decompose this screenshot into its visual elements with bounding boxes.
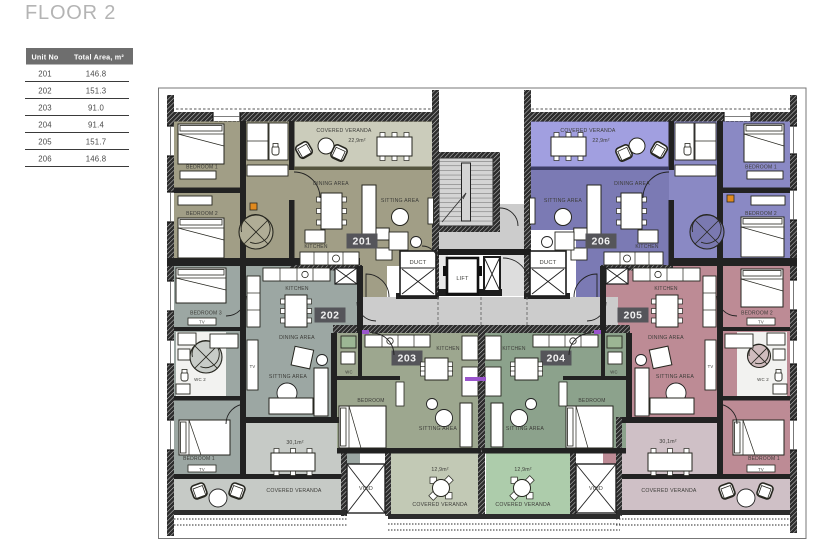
svg-text:22,9m²: 22,9m² (592, 138, 609, 144)
svg-text:205: 205 (38, 138, 52, 147)
svg-text:TV: TV (199, 467, 205, 472)
svg-text:BEDROOM 1: BEDROOM 1 (183, 456, 215, 462)
svg-text:KITCHEN: KITCHEN (635, 244, 659, 250)
svg-text:DINING AREA: DINING AREA (279, 335, 315, 341)
svg-text:201: 201 (38, 70, 52, 79)
svg-text:SITTING AREA: SITTING AREA (506, 426, 544, 432)
svg-text:91.0: 91.0 (88, 104, 104, 113)
svg-text:BEDROOM 1: BEDROOM 1 (186, 165, 218, 171)
svg-text:KITCHEN: KITCHEN (436, 346, 460, 352)
svg-text:DINING AREA: DINING AREA (313, 181, 349, 187)
svg-text:91.4: 91.4 (88, 121, 104, 130)
svg-text:COVERED VERANDA: COVERED VERANDA (495, 502, 551, 508)
svg-text:COVERED VERANDA: COVERED VERANDA (412, 502, 468, 508)
svg-text:12,9m²: 12,9m² (431, 467, 448, 473)
svg-text:BEDROOM 3: BEDROOM 3 (190, 311, 222, 317)
svg-text:BEDROOM: BEDROOM (357, 398, 384, 404)
svg-text:206: 206 (38, 155, 52, 164)
svg-text:151.3: 151.3 (86, 87, 107, 96)
svg-text:WC 2: WC 2 (757, 377, 769, 382)
svg-text:202: 202 (320, 310, 339, 322)
svg-text:146.8: 146.8 (86, 155, 107, 164)
svg-text:202: 202 (38, 87, 52, 96)
svg-text:COVERED VERANDA: COVERED VERANDA (266, 488, 322, 494)
svg-text:WC: WC (345, 370, 352, 375)
svg-text:DINING AREA: DINING AREA (648, 335, 684, 341)
svg-text:COVERED VERANDA: COVERED VERANDA (316, 128, 372, 134)
svg-text:KITCHEN: KITCHEN (502, 346, 526, 352)
svg-text:201: 201 (352, 236, 371, 248)
svg-text:146.8: 146.8 (86, 70, 107, 79)
svg-text:KITCHEN: KITCHEN (285, 286, 309, 292)
svg-text:DINING AREA: DINING AREA (614, 181, 650, 187)
svg-text:TV: TV (758, 320, 764, 325)
svg-text:SITTING AREA: SITTING AREA (656, 374, 694, 380)
svg-text:SITTING AREA: SITTING AREA (419, 426, 457, 432)
svg-text:TV: TV (199, 320, 205, 325)
svg-text:BEDROOM 2: BEDROOM 2 (741, 311, 773, 317)
svg-text:SITTING AREA: SITTING AREA (269, 374, 307, 380)
svg-text:COVERED VERANDA: COVERED VERANDA (641, 488, 697, 494)
svg-text:12,9m²: 12,9m² (514, 467, 531, 473)
svg-text:22,9m²: 22,9m² (348, 138, 365, 144)
svg-text:KITCHEN: KITCHEN (304, 244, 328, 250)
svg-text:FLOOR 2: FLOOR 2 (25, 2, 116, 24)
svg-text:30,1m²: 30,1m² (286, 440, 303, 446)
svg-text:206: 206 (591, 236, 610, 248)
svg-text:WC 2: WC 2 (194, 377, 206, 382)
svg-text:LIFT: LIFT (456, 276, 469, 282)
svg-text:DUCT: DUCT (410, 260, 427, 266)
svg-text:BEDROOM 2: BEDROOM 2 (186, 211, 218, 217)
svg-text:BEDROOM 2: BEDROOM 2 (745, 211, 777, 217)
svg-text:KITCHEN: KITCHEN (654, 286, 678, 292)
svg-text:204: 204 (546, 353, 565, 365)
svg-text:204: 204 (38, 121, 52, 130)
svg-text:205: 205 (623, 310, 642, 322)
svg-text:203: 203 (38, 104, 52, 113)
svg-text:203: 203 (397, 353, 416, 365)
svg-text:BEDROOM: BEDROOM (578, 398, 605, 404)
svg-text:Unit No: Unit No (32, 53, 59, 62)
svg-text:VOID: VOID (589, 486, 603, 492)
svg-text:WC: WC (610, 370, 617, 375)
svg-text:151.7: 151.7 (86, 138, 107, 147)
svg-text:DUCT: DUCT (540, 260, 557, 266)
svg-text:VOID: VOID (359, 486, 373, 492)
svg-text:BEDROOM 1: BEDROOM 1 (745, 165, 777, 171)
svg-text:SITTING AREA: SITTING AREA (381, 198, 419, 204)
svg-text:TV: TV (758, 467, 764, 472)
svg-text:TV: TV (250, 364, 256, 369)
svg-text:BEDROOM 1: BEDROOM 1 (748, 456, 780, 462)
svg-text:Total Area, m²: Total Area, m² (74, 53, 124, 62)
svg-text:SITTING AREA: SITTING AREA (544, 198, 582, 204)
svg-text:TV: TV (708, 364, 714, 369)
svg-text:30,1m²: 30,1m² (659, 439, 676, 445)
